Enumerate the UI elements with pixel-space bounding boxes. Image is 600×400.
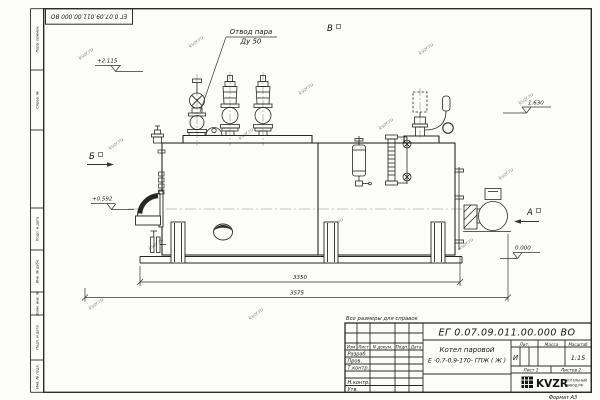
margin-label-inv-dubl: Инв. № дубл. [35, 259, 39, 284]
top-left-fitting [152, 126, 164, 143]
base-skid [140, 257, 462, 264]
product-code: Е -0,7-0,9-170- ГПЖ ( Ж ) [428, 358, 506, 365]
manhole [214, 224, 233, 240]
watermark: kvzr.ru [418, 42, 435, 57]
elevation-right-label: 1.630 [528, 101, 544, 107]
logo-text: KVZR [536, 378, 568, 390]
drawing-canvas: kvzr.ru kvzr.ru kvzr.ru kvzr.ru kvzr.ru … [0, 0, 600, 400]
row-nkontr: Н.контр. [348, 380, 370, 386]
watermark: kvzr.ru [88, 297, 105, 312]
drawing-sheet: kvzr.ru kvzr.ru kvzr.ru kvzr.ru kvzr.ru … [0, 0, 600, 400]
margin-label-vzam-inv: Взам. инв. № [35, 291, 39, 316]
watermark: kvzr.ru [238, 127, 255, 142]
watermark: kvzr.ru [378, 117, 395, 132]
kvzr-logo: KVZR КОТЕЛЬНЫЙ ЗАВОД РФ [522, 377, 588, 391]
burner [136, 191, 164, 227]
col-data: Дата [410, 345, 422, 350]
sheets-total: Листов 2 [560, 368, 581, 374]
mass-header: Масса [545, 342, 559, 348]
watermark: kvzr.ru [188, 35, 205, 50]
logo-caption-2: ЗАВОД РФ [566, 383, 583, 387]
watermark: kvzr.ru [78, 47, 95, 62]
dim-3575-label: 3575 [290, 291, 304, 297]
view-marker-v: В [327, 24, 341, 34]
elevation-zero-label: 0.000 [515, 246, 531, 252]
view-b-label: Б [89, 152, 95, 162]
margin-label-perv-primen: Перв. примен. [35, 26, 39, 53]
elevation-mid: +0.592 [91, 197, 134, 210]
elevation-top-label: +2.115 [97, 59, 118, 65]
kvzr-logo-icon [522, 377, 534, 389]
row-utv: Утв. [348, 387, 359, 393]
row-prov: Пров. [348, 359, 363, 365]
margin-label-inv-podl: Инв. № подл. [35, 364, 39, 389]
view-v-label: В [327, 24, 333, 34]
col-ndokum: N докум. [373, 345, 392, 350]
margin-label-podp-data-1: Подп. и дата [35, 217, 39, 241]
col-podp: Подп. [396, 345, 409, 350]
format-label: Формат А3 [549, 395, 577, 400]
elevation-zero: 0.000 [500, 246, 540, 259]
dim-3575: 3575 [82, 234, 511, 302]
elevation-top: +2.115 [95, 59, 143, 72]
col-list: Лист [357, 345, 369, 350]
view-marker-b: Б [87, 152, 114, 167]
steam-outlet-line1: Отвод пара [230, 28, 273, 36]
liter-value: И [513, 354, 519, 362]
margin-label-podp-data-2: Подп. и дата [35, 325, 39, 349]
dim-3350-label: 3350 [293, 275, 307, 281]
dimensions-annotations: 3350 3575 +2.115 +0.592 1.630 [82, 24, 551, 302]
col-izm: Изм [347, 345, 356, 350]
margin-label-sprav-no: Справ. № [35, 91, 39, 109]
elevation-mid-label: +0.592 [92, 197, 113, 203]
pressure-gauge-assembly [413, 92, 454, 136]
view-marker-a: А [514, 208, 541, 224]
doc-number: ЕГ 0.07.09.011.00.000 ВО [438, 327, 575, 338]
sheet-number: Лист 1 [523, 368, 539, 374]
view-a-label: А [526, 208, 533, 218]
product-name: Котел паровой [440, 346, 495, 354]
corner-stamp-doc-number: ЕГ 0.07.09.011.00.000 ВО [50, 12, 127, 18]
watermark: kvzr.ru [248, 307, 265, 322]
lifting-lug [206, 128, 222, 136]
boiler-drawing [128, 72, 511, 263]
boiler-body [162, 136, 455, 256]
watermark: kvzr.ru [108, 137, 125, 152]
scale-value: 1:15 [571, 354, 586, 362]
watermark: kvzr.ru [298, 82, 315, 97]
logo-caption-1: КОТЕЛЬНЫЙ [566, 378, 588, 383]
row-razrab: Разраб. [348, 352, 368, 358]
scale-header: Масштаб [568, 342, 588, 347]
watermark: kvzr.ru [458, 237, 475, 252]
liter-header: Лит. [519, 342, 530, 348]
steam-outlet-callout: Отвод пара Ду 50 [200, 28, 277, 112]
watermark: kvzr.ru [498, 167, 515, 182]
row-tkontr: Т.контр. [348, 366, 370, 372]
margin-labels: Перв. примен. Справ. № Подп. и дата Инв.… [35, 26, 39, 389]
reference-note: Все размеры для справок [346, 316, 419, 322]
steam-outlet-line2: Ду 50 [240, 38, 262, 46]
dim-3350: 3350 [137, 257, 463, 286]
